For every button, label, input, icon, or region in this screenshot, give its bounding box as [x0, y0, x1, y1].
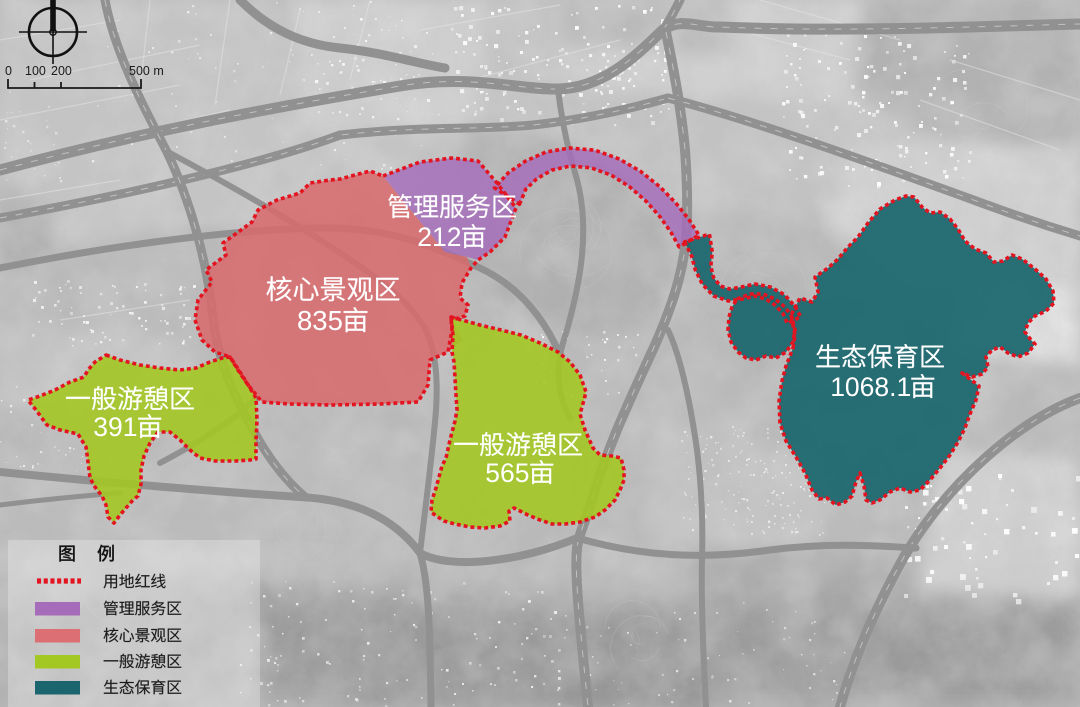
svg-text:835: 835 [297, 305, 343, 336]
svg-text:0: 0 [5, 64, 12, 78]
svg-text:565: 565 [485, 458, 529, 488]
svg-text:500 m: 500 m [129, 64, 164, 78]
svg-text:100: 100 [25, 64, 46, 78]
svg-text:391: 391 [93, 412, 137, 442]
svg-text:212: 212 [417, 222, 461, 252]
svg-text:1068.1: 1068.1 [830, 372, 911, 402]
svg-text:200: 200 [51, 64, 72, 78]
